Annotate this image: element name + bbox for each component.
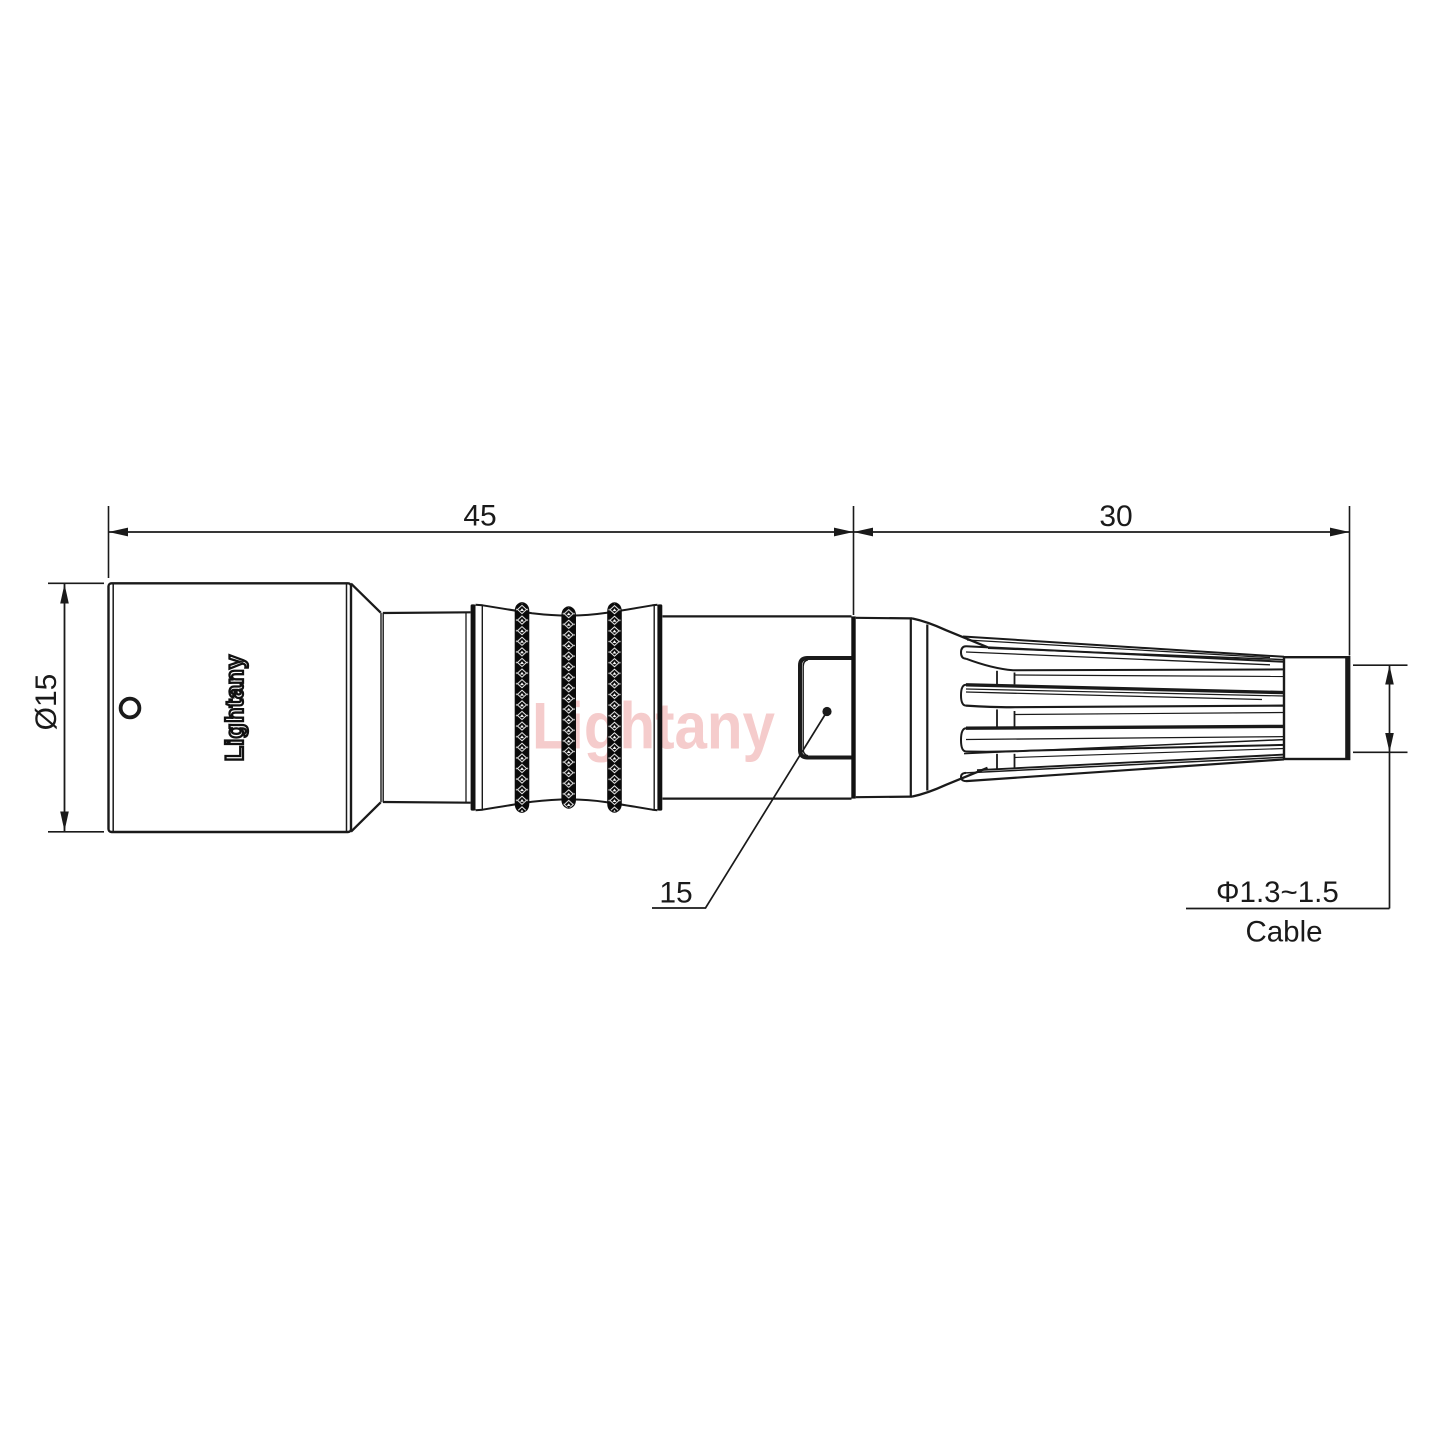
svg-text:30: 30 [1099, 500, 1132, 533]
svg-text:Ø15: Ø15 [30, 674, 63, 731]
svg-text:Lightany: Lightany [221, 655, 249, 762]
svg-text:Φ1.3~1.5: Φ1.3~1.5 [1216, 876, 1339, 909]
svg-text:15: 15 [659, 877, 692, 910]
svg-text:45: 45 [463, 500, 496, 533]
svg-text:Cable: Cable [1245, 916, 1322, 949]
